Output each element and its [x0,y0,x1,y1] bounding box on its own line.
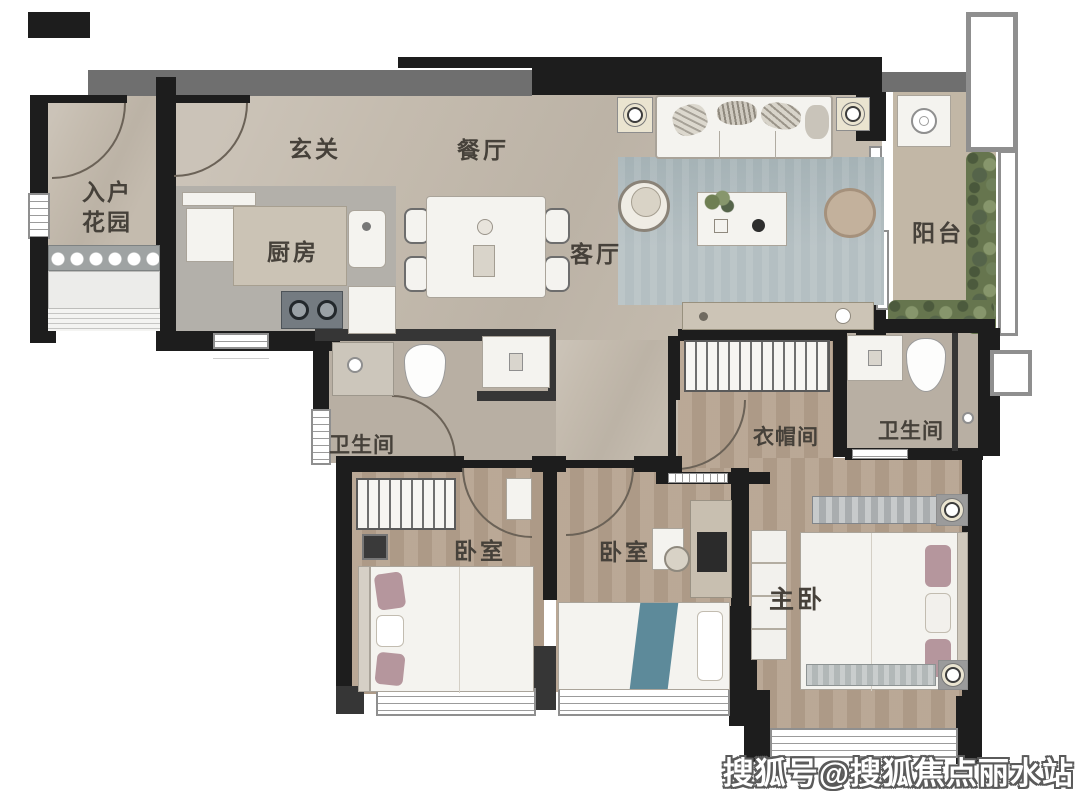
window [998,150,1018,336]
door-lintel [166,95,250,103]
table-decor [473,245,495,277]
bathroom-vanity [847,335,903,381]
kitchen-sink [348,210,386,268]
wall [313,341,329,411]
bathroom-vanity [482,336,550,388]
tv-cabinet [682,302,874,330]
faucet-icon [868,350,882,366]
wall [634,456,682,472]
sofa-pillow [759,100,803,133]
bay-window [558,688,730,716]
room-label-master: 主卧 [769,580,825,616]
shower-head [962,412,974,424]
washing-machine [897,95,951,147]
bay-window [376,688,536,716]
sofa-pillow [805,105,829,139]
nightstand [506,478,532,520]
fridge [186,208,238,262]
window-sill [213,352,269,364]
wall [731,468,749,618]
wall [882,72,974,92]
wall-unit [362,534,388,560]
window [28,193,50,239]
sofa-seat-line [775,131,776,159]
shower [332,342,394,396]
stove [281,291,343,329]
room-label-dining: 餐厅 [457,131,509,165]
room-label-bathroom1: 卫生间 [329,429,395,459]
window [966,12,1018,152]
sofa-pillow [669,100,711,139]
wall [668,336,680,400]
kitchen-corner-cabinet [348,286,396,334]
table-tray [714,219,728,233]
shower-head [347,357,363,373]
blanket-fold [459,567,460,693]
cabinet-decor [835,308,851,324]
sofa [655,95,833,159]
window [311,409,331,465]
pillow [925,593,951,633]
wall [336,458,352,692]
dining-table [426,196,546,298]
wall [833,331,847,457]
wardrobe-rack [356,478,456,530]
window [213,333,269,349]
plant-icon [702,189,736,215]
wall [477,391,556,401]
transom-vent [668,473,728,483]
tv [697,532,727,572]
room-label-entry-garden: 入户 花园 [82,178,132,238]
pillow [697,611,723,681]
burner [289,300,309,320]
entry-counter [48,245,160,271]
dining-chair [544,256,570,292]
desk-chair [664,546,690,572]
sink-faucet [362,222,371,231]
bed [370,566,534,692]
room-label-line: 花园 [82,208,132,238]
armchair-seat [631,187,661,217]
sofa-pillow [717,101,757,125]
washer-drum-inner [919,116,929,126]
blanket [630,603,679,689]
ceiling-speaker [936,494,968,526]
pillow [374,571,407,611]
table-bowl [752,219,765,232]
pillow [374,652,405,687]
door-leaf [462,460,534,468]
bed-bench [806,664,936,686]
kitchen-shelf [182,192,256,206]
room-label-bedroom2: 卧室 [599,533,651,567]
sofa-seat-line [719,131,720,159]
entry-cabinet [48,271,160,309]
watermark: 搜狐号@搜狐焦点丽水站 [723,748,1074,793]
room-label-line: 入户 [82,178,132,208]
pouf [824,188,876,238]
wall [28,12,90,38]
room-label-kitchen: 厨房 [267,233,319,267]
faucet-icon [509,353,523,371]
ceiling-speaker [617,97,653,133]
armchair [618,180,670,232]
coffee-table [697,192,787,246]
room-label-balcony: 阳台 [912,214,964,248]
wall [543,468,557,600]
dining-chair [544,208,570,244]
ceiling-speaker [938,660,968,690]
bed [558,602,730,690]
room-label-bedroom1: 卧室 [454,532,506,566]
sliding-door [852,449,908,459]
ceiling-speaker [836,97,870,131]
pillow [925,545,951,587]
room-label-foyer: 玄关 [289,130,341,164]
pillow [376,615,404,647]
floor-plan: 入户 花园 玄关 餐厅 厨房 客厅 阳台 卫生间 衣帽间 卫生间 卧室 卧室 主… [0,0,1080,797]
table-decor [477,219,493,235]
bed-headboard [358,566,370,692]
burner [317,300,337,320]
entry-bench [48,309,160,331]
wall [532,57,882,95]
door-lintel [33,95,127,103]
wall [952,333,958,451]
window [990,350,1032,396]
room-label-living: 客厅 [570,235,622,269]
wardrobe-rack [684,340,830,392]
wall [398,57,532,68]
cabinet-decor [699,312,708,321]
room-label-bathroom2: 卫生间 [878,415,944,445]
wall [30,95,48,195]
door-leaf [566,460,636,468]
wall [88,70,532,96]
room-label-closet: 衣帽间 [753,421,819,451]
wall [30,237,48,329]
